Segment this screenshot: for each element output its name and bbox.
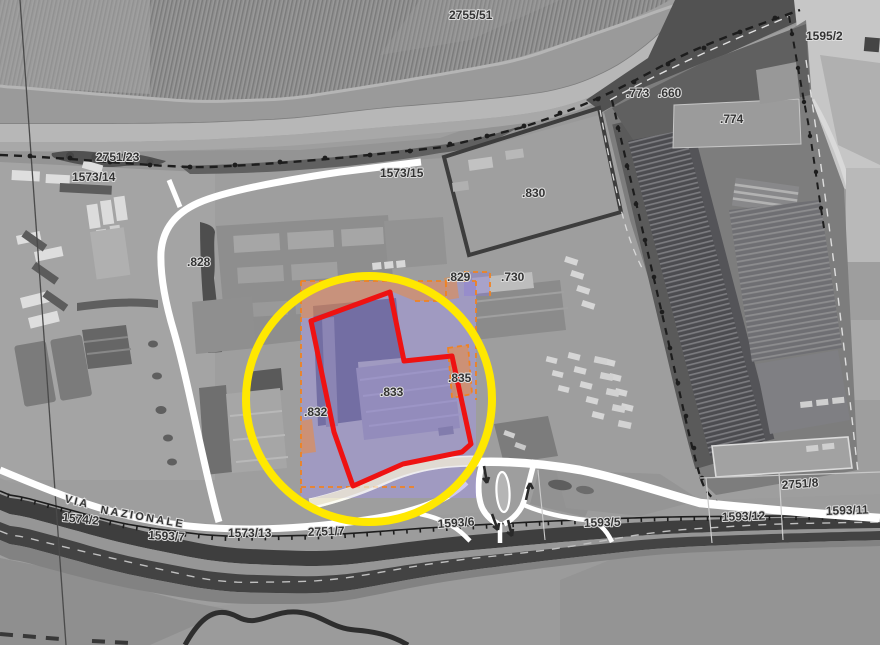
svg-text:.730: .730 (501, 270, 525, 284)
svg-text:2751/7: 2751/7 (308, 524, 345, 539)
svg-text:1593/12: 1593/12 (722, 508, 766, 524)
svg-text:1593/6: 1593/6 (437, 514, 475, 531)
svg-text:1593/11: 1593/11 (826, 503, 870, 518)
svg-text:2755/51: 2755/51 (449, 8, 493, 22)
svg-text:.830: .830 (522, 186, 546, 200)
svg-text:.660: .660 (658, 86, 682, 100)
svg-text:2751/23: 2751/23 (96, 150, 140, 164)
svg-text:.833: .833 (380, 385, 404, 399)
svg-text:1573/13: 1573/13 (228, 526, 272, 540)
svg-text:1593/7: 1593/7 (148, 528, 186, 544)
svg-text:1595/2: 1595/2 (806, 29, 843, 43)
svg-text:.828: .828 (187, 255, 211, 269)
svg-text:1593/5: 1593/5 (584, 515, 621, 530)
svg-text:.832: .832 (304, 405, 328, 419)
svg-text:1573/15: 1573/15 (380, 166, 424, 180)
svg-text:1573/14: 1573/14 (72, 170, 116, 184)
svg-text:.829: .829 (447, 270, 471, 284)
svg-text:.774: .774 (720, 112, 744, 126)
svg-text:.773: .773 (626, 86, 650, 100)
svg-text:2751/8: 2751/8 (781, 475, 819, 492)
svg-text:.835: .835 (448, 371, 472, 385)
